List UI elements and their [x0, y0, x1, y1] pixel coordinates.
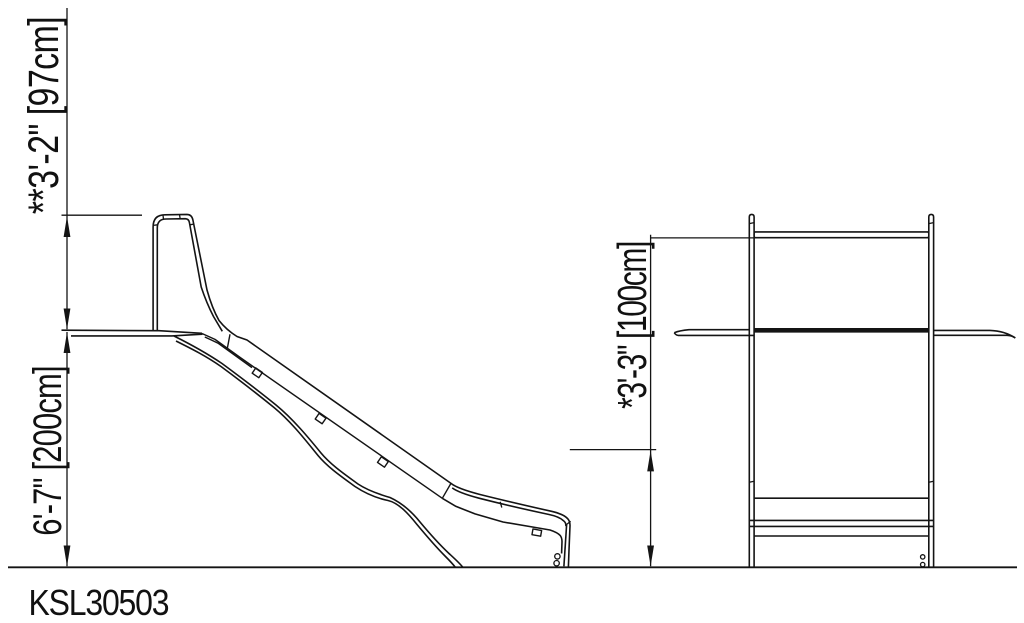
svg-text:6'-7" [200cm]: 6'-7" [200cm]: [24, 366, 70, 536]
svg-text:**3'-2" [97cm]: **3'-2" [97cm]: [20, 17, 67, 214]
svg-text:*3'-3" [100cm]: *3'-3" [100cm]: [610, 242, 655, 409]
svg-text:KSL30503: KSL30503: [29, 583, 169, 623]
